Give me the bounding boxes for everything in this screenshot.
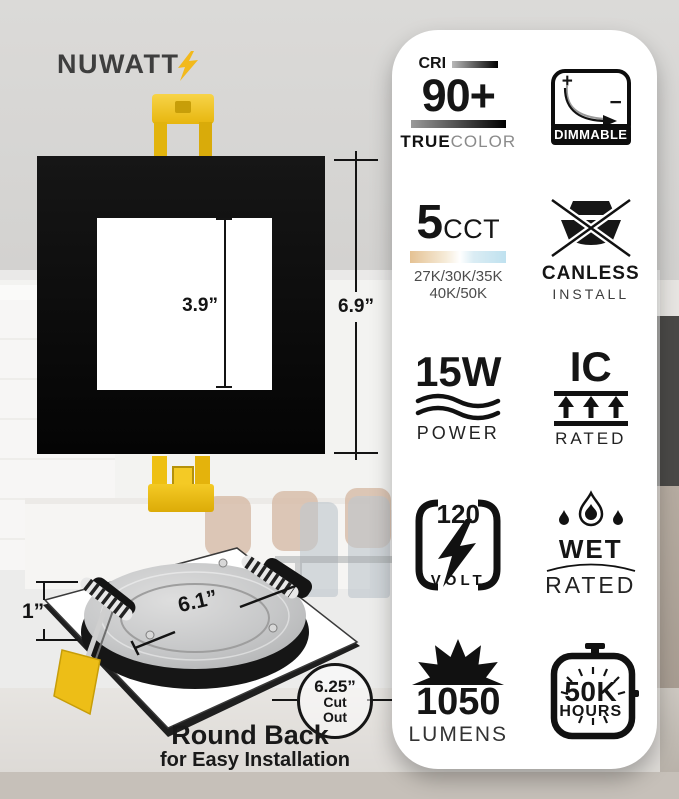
dim-label-outer: 6.9” <box>334 296 378 318</box>
dimmable-icon: + − DIMMABLE <box>551 69 631 139</box>
brand-logo-text: NUWATT <box>57 49 179 80</box>
cutout-size: 6.25” <box>314 678 356 695</box>
cutout-line-left <box>272 699 297 701</box>
spring-clip-middle <box>148 456 214 512</box>
badge-wet: WET RATED <box>545 490 637 599</box>
dim-label-depth: 1” <box>22 600 44 624</box>
badge-cct: 5CCT 27K/30K/35K 40K/50K <box>410 199 506 303</box>
arc-line-icon <box>545 562 637 572</box>
badge-canless: CANLESS INSTALL <box>542 199 640 302</box>
badge-cri: CRI 90+ TRUECOLOR <box>400 55 516 152</box>
product-infographic: NUWATT 3.9” 6.9” <box>0 0 679 799</box>
spring-clip-top <box>152 94 214 158</box>
badge-lumens: 1050 LUMENS <box>408 637 508 747</box>
badge-dimmable: + − DIMMABLE <box>551 69 631 139</box>
brand-logo: NUWATT <box>57 49 199 81</box>
dim-tick <box>36 639 78 641</box>
bg-bottom-strip <box>0 772 679 799</box>
dim-tick <box>216 386 232 388</box>
caption-subtitle: for Easy Installation <box>135 749 375 772</box>
badge-power: 15W POWER <box>415 351 501 444</box>
gradient-bar-icon <box>452 61 498 68</box>
cct-gradient-bar-icon <box>410 251 506 263</box>
sunburst-icon <box>408 637 508 687</box>
caption-title: Round Back <box>140 720 360 751</box>
dim-line-inner <box>224 219 226 387</box>
wave-icon <box>415 393 501 421</box>
features-card: CRI 90+ TRUECOLOR + − DIMMABLE <box>392 30 657 769</box>
yellow-clip-on-fixture <box>54 650 100 714</box>
stopwatch-icon: 50K HOURS <box>541 640 641 744</box>
lightning-bolt-icon <box>177 51 199 81</box>
dim-line-outer <box>355 151 357 292</box>
badge-hours: 50K HOURS <box>541 640 641 744</box>
gradient-bar-icon <box>411 120 506 128</box>
dim-label-inner: 3.9” <box>170 295 218 317</box>
volt-bracket-icon: 120 VOLT <box>410 499 506 591</box>
dim-line-outer <box>355 322 357 460</box>
dim-tick <box>334 452 378 454</box>
ic-arrows-icon <box>554 396 628 418</box>
canless-icon <box>549 199 633 259</box>
dim-line-depth <box>43 583 45 600</box>
badge-volt: 120 VOLT <box>410 499 506 591</box>
badge-ic: IC RATED <box>554 346 628 449</box>
dim-line-depth <box>43 629 45 639</box>
water-drops-icon <box>549 490 633 534</box>
